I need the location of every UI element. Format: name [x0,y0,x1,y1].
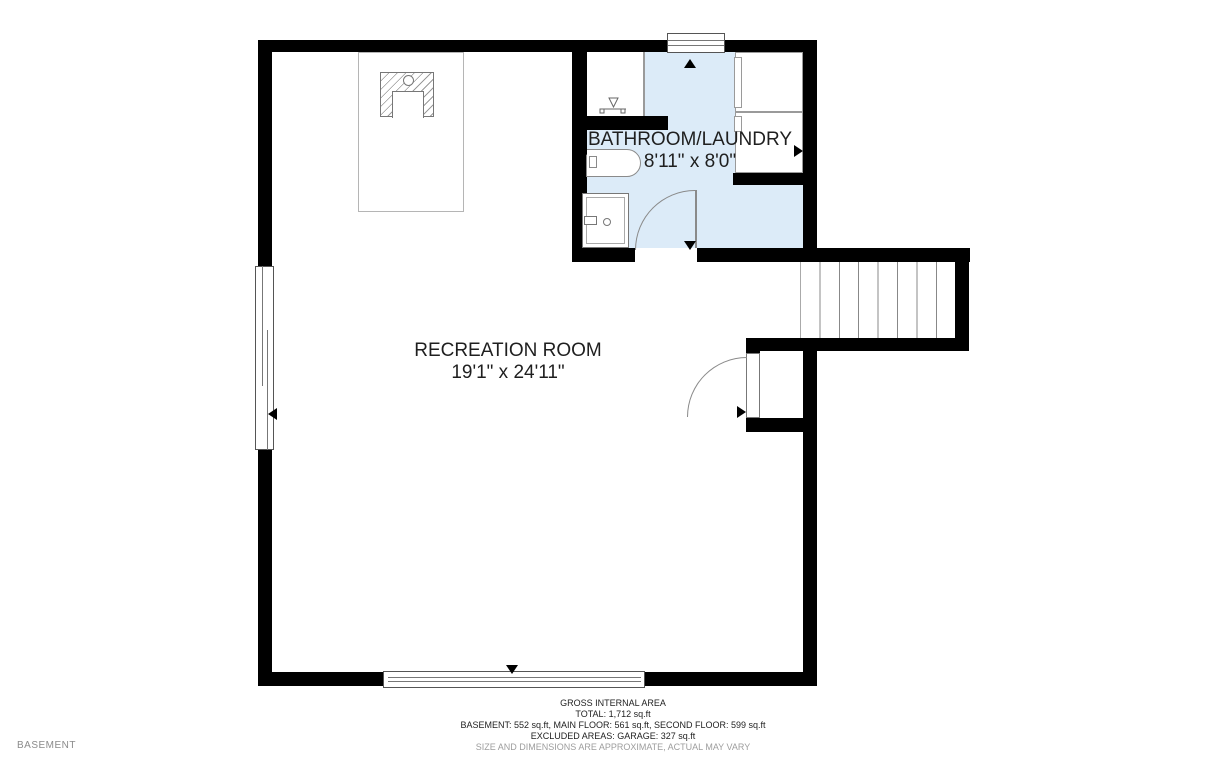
total-area: TOTAL: 1,712 sq.ft [413,709,813,720]
sink-soap-tray [584,216,597,225]
top-window-pane-line [668,45,724,46]
left-window [255,266,274,450]
excluded-areas: EXCLUDED AREAS: GARAGE: 327 sq.ft [413,731,813,742]
bathroom-label-block: BATHROOM/LAUNDRY 8'11" x 8'0" [572,129,808,173]
room-label-bathroom: BATHROOM/LAUNDRY [572,129,808,151]
bathroom-door-leaf [695,190,697,248]
floor-plan: BATHROOM/LAUNDRY 8'11" x 8'0" RECREATION… [0,0,1229,768]
stairwell-wall-right [955,248,969,351]
exterior-wall-top [258,40,817,52]
closet-door-leaf [746,353,760,418]
shower-faucet-icon [598,96,628,115]
bathroom-door-arrow-icon [684,241,696,250]
top-window-pane-line [668,40,724,41]
closet-door-arrow-icon [737,406,746,418]
room-dims-recreation: 19'1" x 24'11" [378,362,638,384]
left-window-arrow-icon [268,408,277,420]
bathroom-stairs-wall [572,248,970,262]
stairwell-wall-bottom [746,338,969,351]
level-label: BASEMENT [17,740,76,751]
staircase [800,262,955,338]
left-window-pane-line [262,266,263,386]
floor-areas: BASEMENT: 552 sq.ft, MAIN FLOOR: 561 sq.… [413,720,813,731]
top-window-arrow-icon [684,59,696,68]
top-window [667,33,725,53]
fireplace-flue-icon [403,75,414,86]
bottom-window-pane-line [388,681,641,682]
laundry-partition-wall [733,173,805,185]
fireplace-hearth [392,91,424,118]
disclaimer: SIZE AND DIMENSIONS ARE APPROXIMATE, ACT… [413,742,813,753]
understair-closet-wall [746,418,817,432]
shower-partition-wall [572,116,668,130]
bottom-window-pane-line [388,677,641,678]
room-label-recreation: RECREATION ROOM [378,340,638,362]
laundry-unit-top [735,52,803,112]
laundry-door-panel-top [734,57,742,108]
bathroom-door-opening [635,248,697,262]
exterior-wall-right-lower [803,351,817,686]
gross-internal-area-title: GROSS INTERNAL AREA [413,698,813,709]
area-summary: GROSS INTERNAL AREA TOTAL: 1,712 sq.ft B… [413,698,813,753]
recreation-label-block: RECREATION ROOM 19'1" x 24'11" [378,340,638,384]
room-dims-bathroom: 8'11" x 8'0" [572,151,808,173]
bottom-window-arrow-icon [506,665,518,674]
sink-faucet-icon [603,218,611,226]
left-window-pane-line [267,330,268,450]
